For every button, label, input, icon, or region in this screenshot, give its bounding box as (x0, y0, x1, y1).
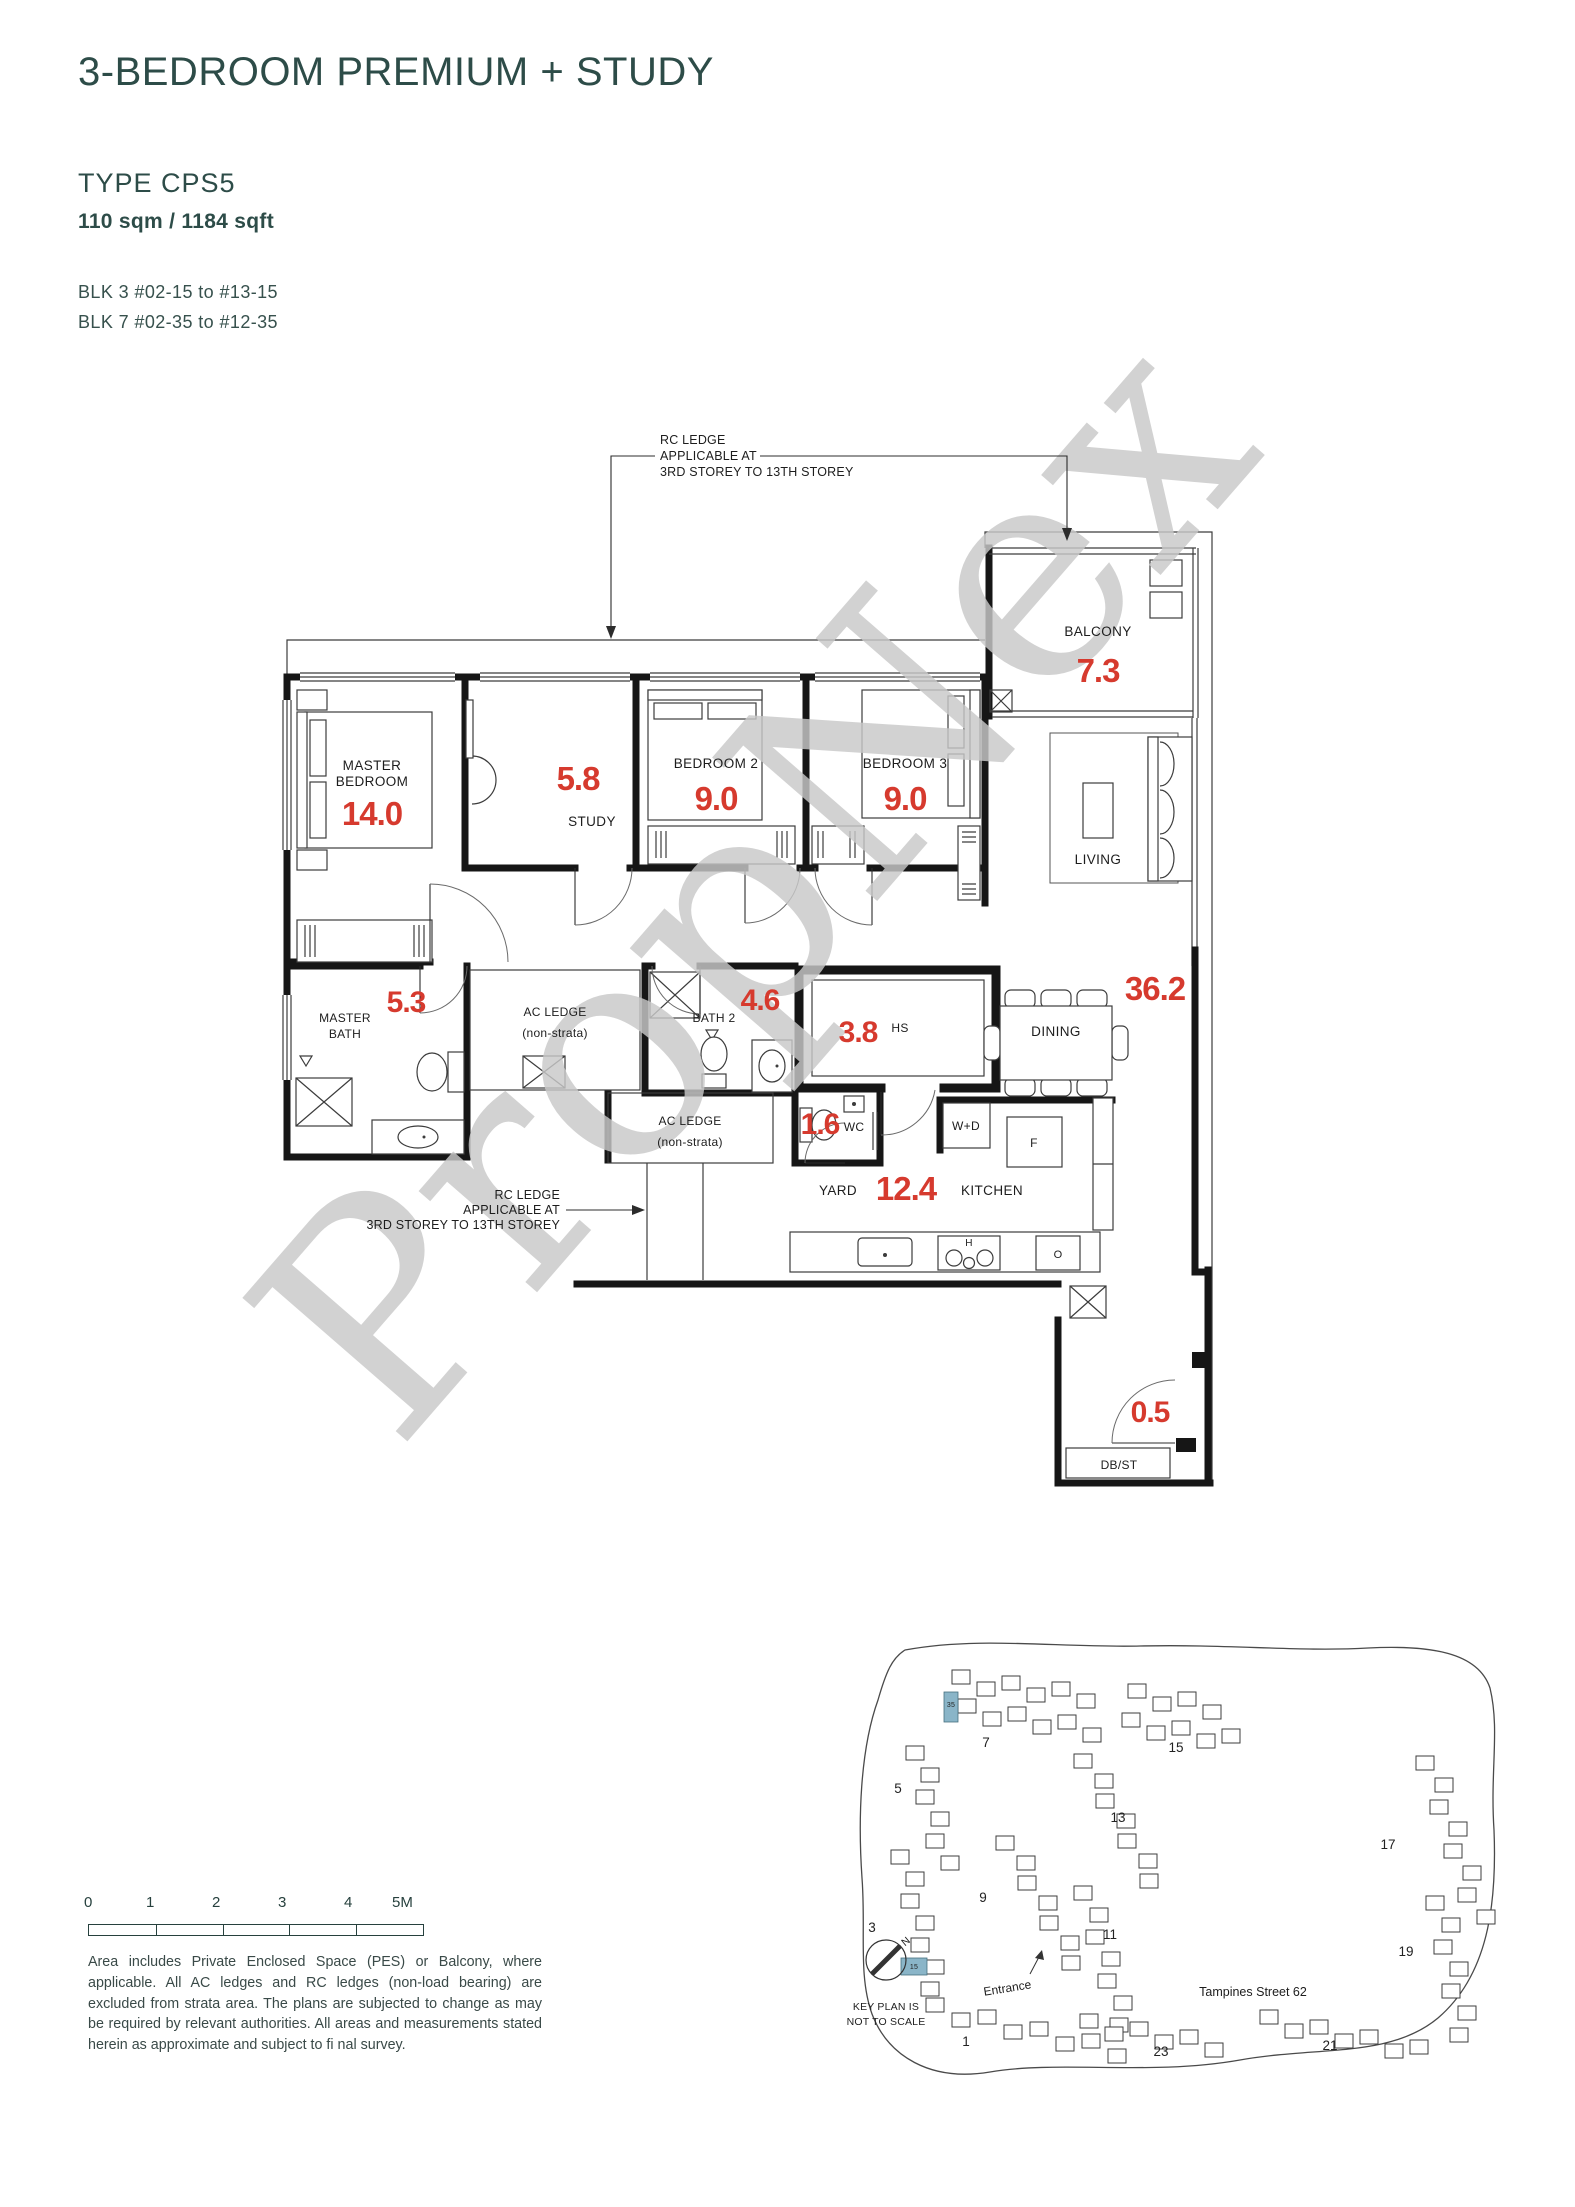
master-wardrobe (297, 920, 432, 962)
svg-text:35: 35 (947, 1702, 955, 1709)
unit-area-label: 110 sqm / 1184 sqft (78, 210, 274, 234)
floorplan-page: 3-BEDROOM PREMIUM + STUDY TYPE CPS5 110 … (0, 0, 1575, 2207)
master-bed (297, 690, 432, 870)
svg-text:13: 13 (1110, 1810, 1125, 1825)
scale-tick-4: 4 (344, 1894, 352, 1911)
svg-text:7: 7 (982, 1735, 990, 1750)
keyplan-block-numbers: 1 3 5 7 9 11 13 15 17 19 21 23 (868, 1735, 1413, 2059)
scale-tick-0: 0 (84, 1894, 92, 1911)
svg-text:1: 1 (962, 2034, 970, 2049)
scale-tick-2: 2 (212, 1894, 220, 1911)
entrance-foyer (1066, 1352, 1210, 1478)
svg-text:NOT TO SCALE: NOT TO SCALE (847, 2016, 926, 2028)
svg-text:21: 21 (1322, 2038, 1337, 2053)
svg-text:17: 17 (1380, 1837, 1395, 1852)
scale-bar-ruler (88, 1924, 424, 1936)
scale-tick-5: 5M (392, 1894, 413, 1911)
svg-text:9: 9 (979, 1890, 987, 1905)
scale-tick-1: 1 (146, 1894, 154, 1911)
svg-text:Entrance: Entrance (983, 1977, 1033, 1998)
svg-text:Tampines Street 62: Tampines Street 62 (1199, 1985, 1307, 1999)
page-title: 3-BEDROOM PREMIUM + STUDY (78, 50, 714, 95)
street-label: Tampines Street 62 (1199, 1985, 1307, 1999)
keyplan-buildings (891, 1670, 1495, 2063)
svg-text:19: 19 (1398, 1944, 1413, 1959)
kitchen-fixtures (790, 1098, 1113, 1272)
svg-text:15: 15 (910, 1964, 918, 1971)
ac-ledge-foyer (1070, 1286, 1106, 1318)
svg-text:15: 15 (1168, 1740, 1183, 1755)
unit-type-label: TYPE CPS5 (78, 168, 236, 199)
svg-text:KEY PLAN IS: KEY PLAN IS (853, 2001, 919, 2013)
svg-text:3: 3 (868, 1920, 876, 1935)
keyplan-map: 35 15 1 3 5 7 9 11 13 15 17 19 21 23 N K… (790, 1600, 1510, 2080)
svg-text:23: 23 (1153, 2044, 1168, 2059)
study-desk (466, 700, 496, 804)
keyplan-caption: KEY PLAN IS NOT TO SCALE (847, 2001, 926, 2028)
entrance-label: Entrance (983, 1950, 1044, 1999)
block-range-2: BLK 7 #02-35 to #12-35 (78, 312, 278, 333)
block-range-1: BLK 3 #02-15 to #13-15 (78, 282, 278, 303)
scale-tick-3: 3 (278, 1894, 286, 1911)
dining-set (984, 990, 1128, 1096)
svg-text:11: 11 (1103, 1927, 1117, 1942)
svg-text:5: 5 (894, 1781, 902, 1796)
disclaimer-text: Area includes Private Enclosed Space (PE… (88, 1952, 542, 2056)
